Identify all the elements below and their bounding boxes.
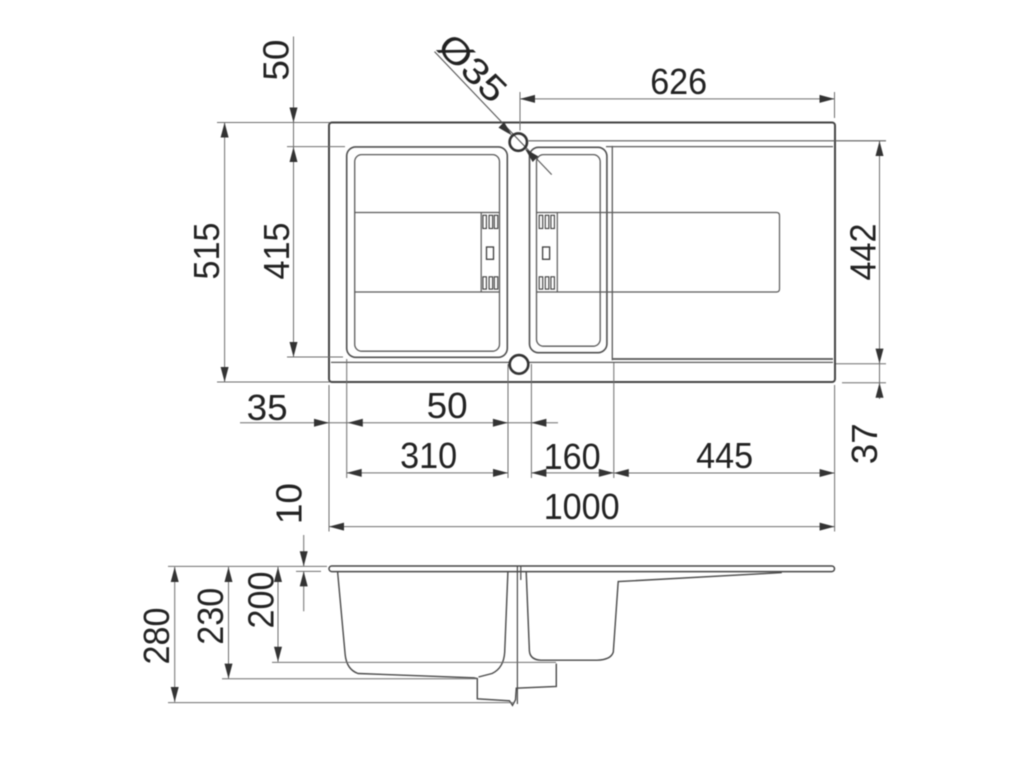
svg-text:160: 160 xyxy=(544,436,601,477)
svg-text:515: 515 xyxy=(186,223,227,280)
svg-text:280: 280 xyxy=(136,608,177,665)
svg-text:230: 230 xyxy=(190,588,231,645)
svg-text:445: 445 xyxy=(696,435,753,476)
svg-text:626: 626 xyxy=(650,61,707,102)
svg-text:1000: 1000 xyxy=(544,486,620,527)
svg-text:10: 10 xyxy=(269,483,310,524)
svg-text:200: 200 xyxy=(241,572,282,629)
svg-text:50: 50 xyxy=(255,40,296,81)
svg-text:35: 35 xyxy=(247,387,288,428)
svg-text:415: 415 xyxy=(256,223,297,280)
svg-text:37: 37 xyxy=(844,423,885,464)
svg-text:50: 50 xyxy=(427,385,468,426)
svg-text:310: 310 xyxy=(400,435,457,476)
svg-text:442: 442 xyxy=(843,224,884,281)
